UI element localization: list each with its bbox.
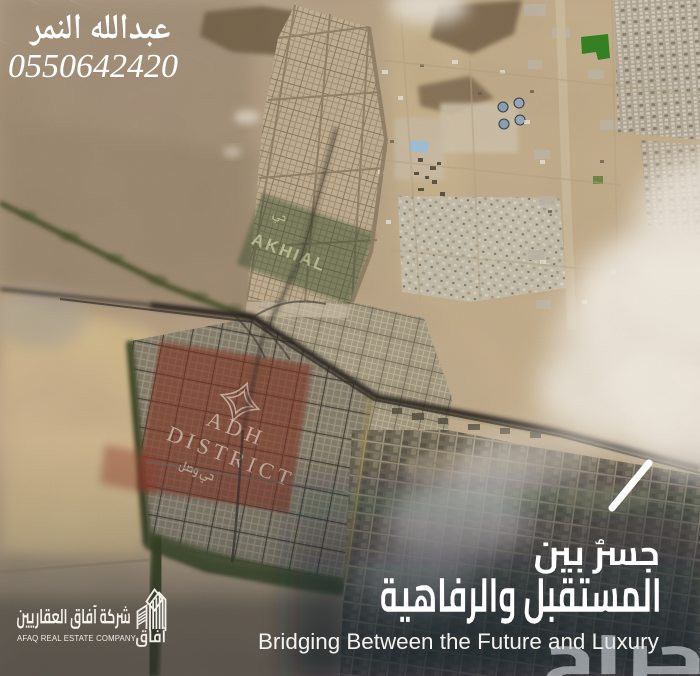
svg-text:Bridging Between the Future an: Bridging Between the Future and Luxury <box>258 629 660 654</box>
svg-text:AFAQ REAL ESTATE COMPANY: AFAQ REAL ESTATE COMPANY <box>17 634 137 643</box>
svg-text:0550642420: 0550642420 <box>8 48 178 85</box>
